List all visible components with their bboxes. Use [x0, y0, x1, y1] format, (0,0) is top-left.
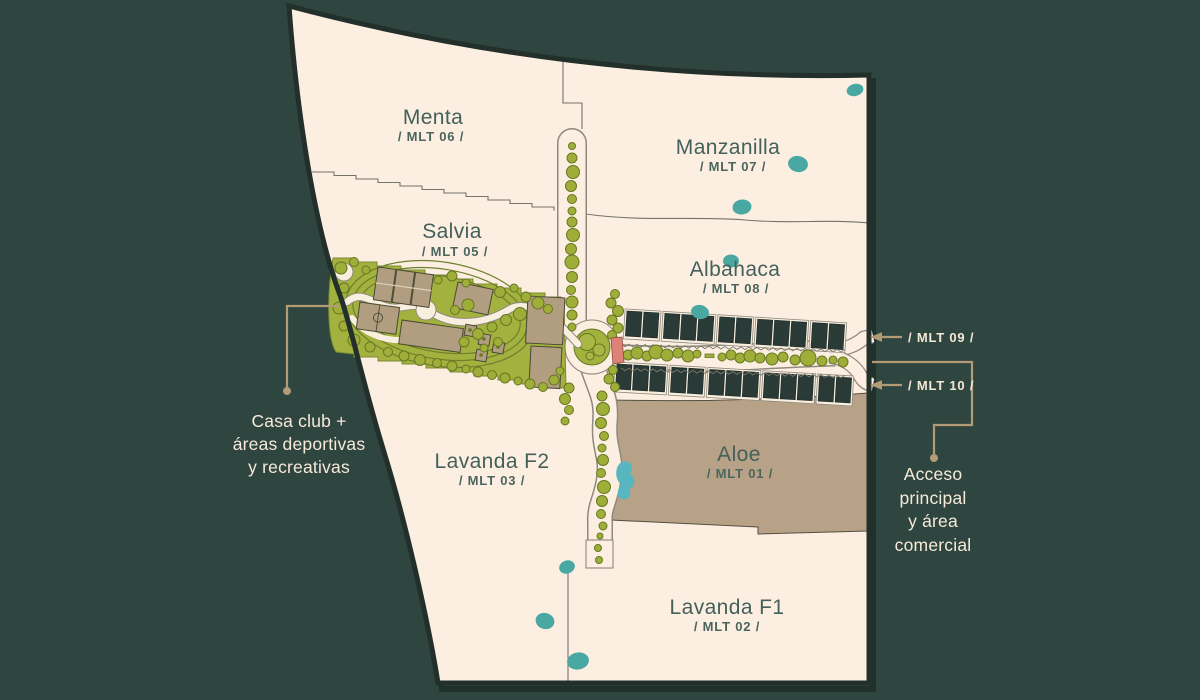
region-label-manzanilla: Manzanilla	[676, 136, 780, 159]
region-label-menta: Menta	[403, 106, 463, 129]
acceso-line2: principal	[900, 488, 967, 508]
club-building	[526, 296, 565, 345]
crosswalk-marker	[611, 337, 624, 364]
region-code-manzanilla: / MLT 07 /	[700, 159, 766, 174]
region-code-albahaca: / MLT 08 /	[703, 281, 769, 296]
casa-club-line1: Casa club +	[251, 411, 346, 431]
callout-dot	[283, 387, 291, 395]
region-label-lavanda-f1: Lavanda F1	[670, 596, 785, 619]
site-map-svg: Menta / MLT 06 / Manzanilla / MLT 07 / S…	[0, 0, 1200, 700]
region-label-albahaca: Albahaca	[690, 258, 781, 281]
region-code-salvia: / MLT 05 /	[422, 244, 488, 259]
casa-club-line3: y recreativas	[248, 457, 350, 477]
mlt10-label: / MLT 10 /	[908, 378, 974, 393]
region-label-salvia: Salvia	[422, 220, 482, 243]
basketball-court	[356, 302, 399, 334]
acceso-line1: Acceso	[904, 464, 963, 484]
acceso-line4: comercial	[895, 535, 972, 555]
region-label-lavanda-f2: Lavanda F2	[435, 450, 550, 473]
region-code-lavanda-f2: / MLT 03 /	[459, 473, 525, 488]
north-road-trees	[565, 143, 580, 332]
tennis-courts	[373, 267, 433, 307]
region-label-aloe: Aloe	[717, 443, 761, 466]
region-code-lavanda-f1: / MLT 02 /	[694, 619, 760, 634]
region-code-menta: / MLT 06 /	[398, 129, 464, 144]
callout-dot	[930, 454, 938, 462]
casa-club-line2: áreas deportivas	[233, 434, 366, 454]
region-code-aloe: / MLT 01 /	[707, 466, 773, 481]
acceso-line3: y área	[908, 511, 958, 531]
mlt09-label: / MLT 09 /	[908, 330, 974, 345]
